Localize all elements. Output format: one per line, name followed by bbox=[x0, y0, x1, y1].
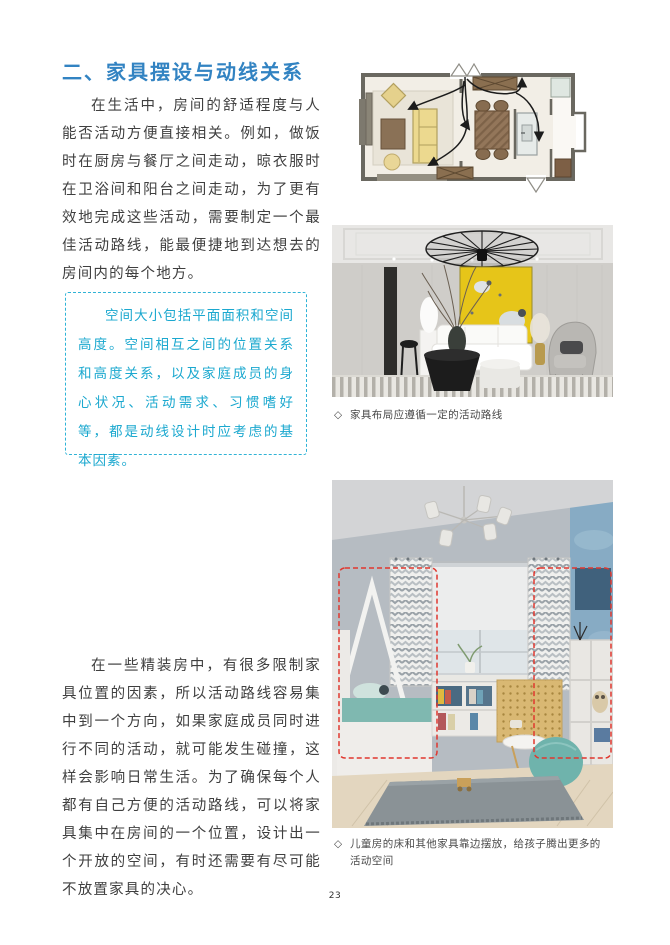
living-room-scene bbox=[332, 225, 613, 397]
rug bbox=[364, 776, 584, 826]
toy bbox=[379, 685, 389, 695]
callout-box: 空间大小包括平面面积和空间高度。空间相互之间的位置关系和高度关系，以及家庭成员的… bbox=[65, 292, 307, 455]
bed-base bbox=[337, 722, 432, 776]
cube-shelf bbox=[570, 568, 613, 765]
cylinder-side-table bbox=[480, 359, 520, 388]
entry-door-leaf bbox=[467, 64, 481, 76]
pouf bbox=[384, 154, 400, 170]
dark-panel bbox=[384, 267, 397, 383]
dining-chair bbox=[476, 101, 490, 112]
dining-table bbox=[475, 111, 509, 149]
dining-chair bbox=[494, 101, 508, 112]
caption-kids-room: ◇ 儿童房的床和其他家具靠边摆放，给孩子腾出更多的活动空间 bbox=[334, 836, 606, 870]
floorplan-drawing bbox=[355, 63, 595, 195]
sideboard bbox=[366, 93, 372, 145]
book-page: 二、家具摆设与动线关系 在生活中，房间的舒适程度与人能否活动方便直接相关。例如，… bbox=[0, 0, 670, 945]
caption-text: 家具布局应遵循一定的活动路线 bbox=[350, 407, 610, 424]
coffee-table bbox=[381, 119, 405, 149]
owl-plush bbox=[592, 691, 608, 713]
paragraph-furnished-homes: 在一些精装房中，有很多限制家具位置的因素，所以活动路线容易集中到一个方向，如果家… bbox=[62, 652, 321, 904]
bookshelf bbox=[432, 682, 497, 736]
page-title: 二、家具摆设与动线关系 bbox=[62, 56, 342, 85]
caption-text: 儿童房的床和其他家具靠边摆放，给孩子腾出更多的活动空间 bbox=[350, 836, 606, 870]
entry-door-leaf bbox=[451, 64, 467, 76]
radiator-cover bbox=[497, 680, 562, 742]
caption-living-room: ◇ 家具布局应遵循一定的活动路线 bbox=[334, 407, 610, 424]
diamond-marker-icon: ◇ bbox=[334, 836, 350, 870]
hall-sideboard bbox=[555, 159, 571, 177]
wall-cube bbox=[575, 568, 611, 610]
kids-room-photo bbox=[332, 480, 613, 828]
roller-shade bbox=[431, 567, 529, 640]
paragraph-intro: 在生活中，房间的舒适程度与人能否活动方便直接相关。例如，做饭时在厨房与餐厅之间走… bbox=[62, 92, 321, 288]
dining-chair bbox=[494, 149, 508, 160]
diamond-marker-icon: ◇ bbox=[334, 407, 350, 424]
bottom-door-leaf bbox=[527, 178, 545, 192]
storage-box bbox=[594, 728, 610, 742]
fan-pendant-lamp bbox=[426, 231, 538, 267]
sofa bbox=[413, 109, 437, 163]
pillow bbox=[560, 341, 583, 354]
living-room-photo bbox=[332, 225, 613, 397]
floorplan-figure bbox=[355, 63, 595, 195]
teapot bbox=[510, 720, 522, 728]
page-number: 23 bbox=[0, 891, 670, 901]
cone-coffee-table bbox=[424, 349, 480, 391]
dining-chair bbox=[476, 149, 490, 160]
window-left bbox=[359, 99, 366, 145]
small-room bbox=[551, 78, 570, 97]
window bbox=[423, 562, 537, 681]
kids-room-scene bbox=[332, 480, 613, 828]
